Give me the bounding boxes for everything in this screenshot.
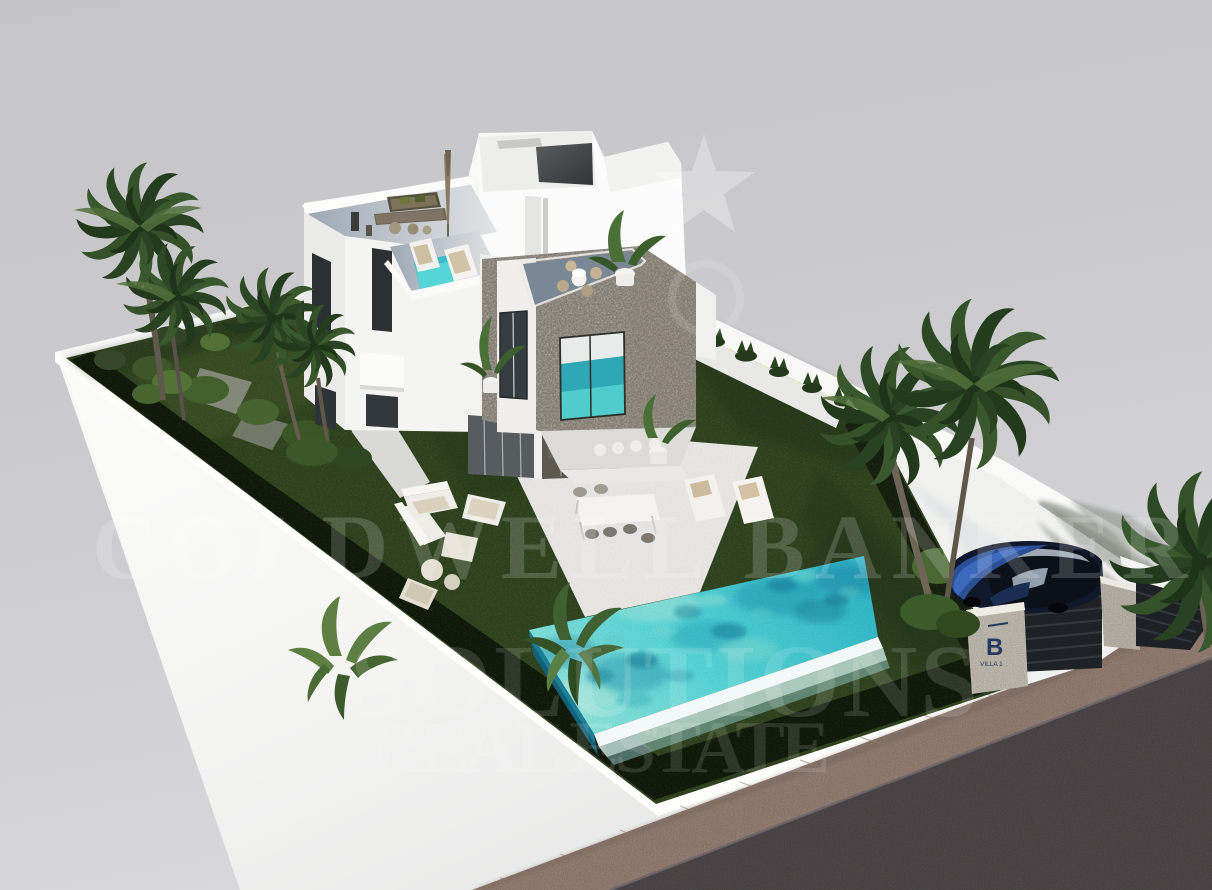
svg-text:COLDWELL BANKER: COLDWELL BANKER	[92, 496, 1202, 598]
svg-text:REAL ESTATE: REAL ESTATE	[370, 707, 840, 789]
